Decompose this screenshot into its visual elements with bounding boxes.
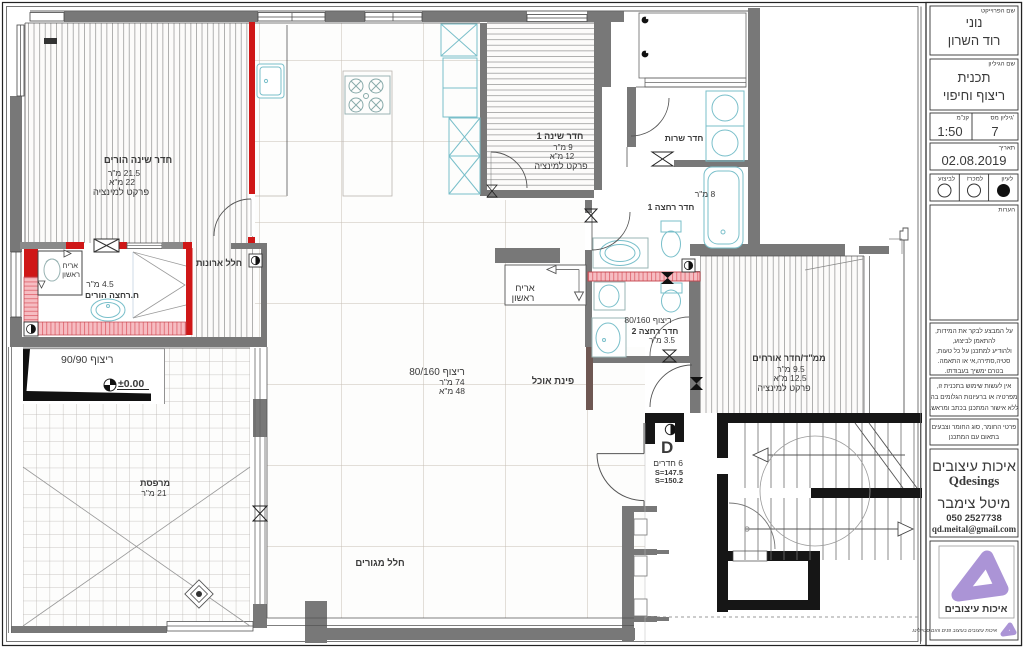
svg-text:סטיה,סתירה,אי או התאמה.: סטיה,סתירה,אי או התאמה. <box>938 358 1011 365</box>
svg-text:חלל ארונות: חלל ארונות <box>196 258 242 268</box>
svg-text:מרפסת: מרפסת <box>140 478 170 488</box>
svg-text:פינת אוכל: פינת אוכל <box>532 376 574 387</box>
svg-text:3.5 מ"ר: 3.5 מ"ר <box>649 336 676 345</box>
svg-text:חדר שרות: חדר שרות <box>665 133 704 143</box>
svg-text:מפרטיה או ברעיונות הגלומים בה: מפרטיה או ברעיונות הגלומים בה <box>931 393 1018 401</box>
svg-text:גיליון מס': גיליון מס' <box>990 114 1014 122</box>
svg-text:פרטי החומר, סוג החומר וצבעים: פרטי החומר, סוג החומר וצבעים <box>932 424 1017 431</box>
svg-text:חדר שינה 1: חדר שינה 1 <box>537 131 584 141</box>
svg-text:ריצוף 80/160: ריצוף 80/160 <box>624 315 671 325</box>
svg-text:הערות: הערות <box>998 207 1015 214</box>
svg-text:אריח: אריח <box>63 261 79 270</box>
svg-text:02.08.2019: 02.08.2019 <box>941 153 1006 168</box>
svg-text:48 מ"א: 48 מ"א <box>439 386 465 396</box>
svg-text:איכות עיצובים: איכות עיצובים <box>945 604 1008 615</box>
svg-text:למכרז: למכרז <box>967 175 983 183</box>
svg-text:21 מ"ר: 21 מ"ר <box>141 488 166 498</box>
svg-text:שם הפרוייקט: שם הפרוייקט <box>981 8 1015 15</box>
svg-text:4.5 מ"ר: 4.5 מ"ר <box>86 279 114 289</box>
svg-text:8 מ"ר: 8 מ"ר <box>695 189 716 199</box>
svg-text:אין לעשות שימוש בתכנית זו,: אין לעשות שימוש בתכנית זו, <box>937 382 1012 390</box>
svg-text:ח.רחצה הורים: ח.רחצה הורים <box>85 290 139 300</box>
svg-text:ולהודיע למתכנן על כל טעות,: ולהודיע למתכנן על כל טעות, <box>936 347 1012 355</box>
svg-text:ריצוף 90/90: ריצוף 90/90 <box>61 354 114 366</box>
svg-text:על המבצע לבקר את המידות,: על המבצע לבקר את המידות, <box>935 327 1013 335</box>
svg-text:חדר רחצה 1: חדר רחצה 1 <box>648 202 695 212</box>
svg-text:קנ"מ: קנ"מ <box>956 115 969 122</box>
svg-text:פרקט למינציה: פרקט למינציה <box>534 161 587 171</box>
svg-text:תאריך: תאריך <box>999 145 1015 152</box>
svg-text:מיטל צימבר: מיטל צימבר <box>938 495 1011 512</box>
svg-text:Qdesings: Qdesings <box>949 473 1000 488</box>
svg-text:ראשון: ראשון <box>62 270 80 279</box>
svg-text:לביצוע: לביצוע <box>938 175 955 183</box>
svg-text:±0.00: ±0.00 <box>118 378 144 390</box>
svg-text:S=150.2: S=150.2 <box>655 476 683 485</box>
svg-text:פרקט למינציה: פרקט למינציה <box>757 383 810 393</box>
svg-text:ללא אישור המתכנן בכתב ומראש.: ללא אישור המתכנן בכתב ומראש. <box>930 404 1019 412</box>
svg-text:בטרם ימשיך בעבודתו.: בטרם ימשיך בעבודתו. <box>945 368 1004 375</box>
svg-text:ממ"ד/חדר אורחים: ממ"ד/חדר אורחים <box>752 353 825 363</box>
svg-text:ראשון: ראשון <box>512 293 535 304</box>
svg-text:1:50: 1:50 <box>937 124 962 139</box>
svg-text:12 מ"א: 12 מ"א <box>550 152 575 161</box>
svg-text:7: 7 <box>991 124 998 139</box>
svg-text:ריצוף וחיפוי: ריצוף וחיפוי <box>943 88 1005 103</box>
svg-text:שם הגיליון: שם הגיליון <box>988 60 1015 68</box>
svg-text:בתאום עם המתכנן: בתאום עם המתכנן <box>949 434 999 441</box>
svg-text:D: D <box>661 438 673 457</box>
svg-text:לעיון: לעיון <box>1001 175 1013 183</box>
svg-text:איכות עיצובים בעיצוב פנים והום: איכות עיצובים בעיצוב פנים והום סטיילינג <box>912 627 998 634</box>
svg-text:חלל מגורים: חלל מגורים <box>355 558 404 569</box>
svg-text:חדר רחצה 2: חדר רחצה 2 <box>632 326 679 336</box>
svg-text:רוד השרון: רוד השרון <box>948 33 1001 48</box>
svg-text:9 מ"ר: 9 מ"ר <box>553 143 573 152</box>
svg-text:050 2527738: 050 2527738 <box>946 513 1001 524</box>
svg-text:6 חדרים: 6 חדרים <box>653 458 683 468</box>
svg-text:חדר שינה הורים: חדר שינה הורים <box>104 155 172 166</box>
svg-text:qd.meital@gmail.com: qd.meital@gmail.com <box>932 524 1017 534</box>
svg-text:22 מ"א: 22 מ"א <box>109 177 135 187</box>
svg-text:נוני: נוני <box>966 15 983 30</box>
svg-text:תכנית: תכנית <box>958 70 991 85</box>
svg-text:להתאמן לביצוע,: להתאמן לביצוע, <box>953 337 997 345</box>
svg-text:12.5 מ"א: 12.5 מ"א <box>773 373 806 383</box>
svg-text:פרקט למינציה: פרקט למינציה <box>93 186 150 198</box>
